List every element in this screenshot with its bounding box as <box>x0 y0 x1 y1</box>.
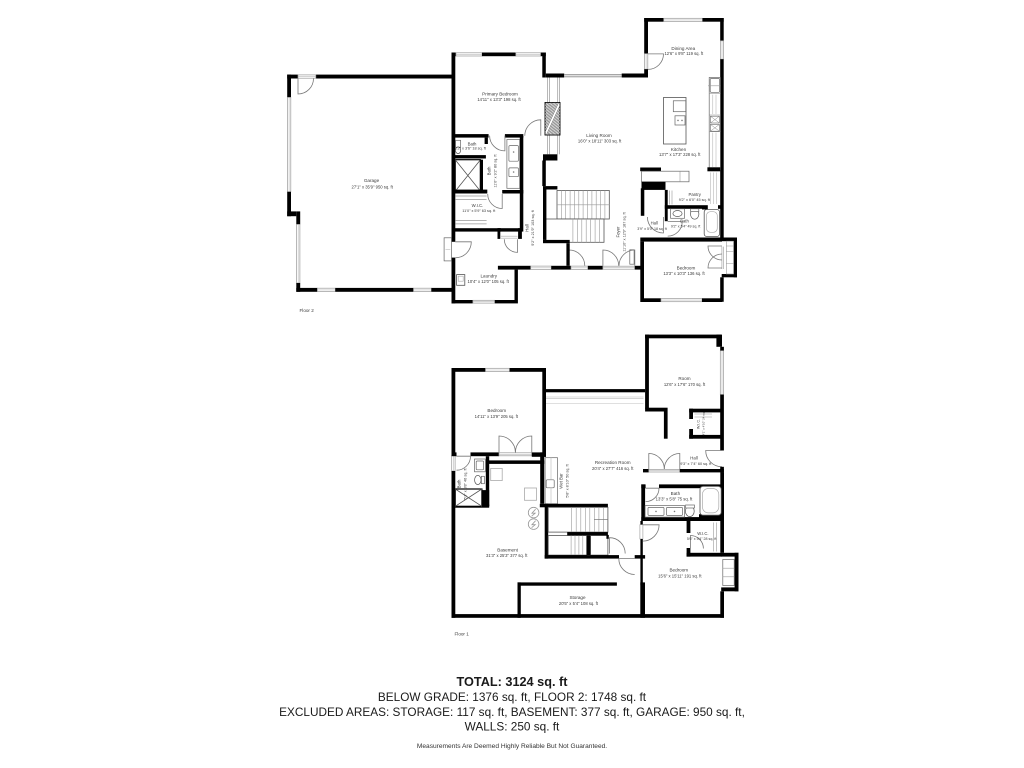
svg-text:12'6" x 17'6" 170 sq. ft: 12'6" x 17'6" 170 sq. ft <box>664 382 706 387</box>
svg-text:Measurements Are Deemed Highly: Measurements Are Deemed Highly Reliable … <box>417 743 607 750</box>
svg-text:W.I.C.: W.I.C. <box>472 203 484 208</box>
svg-text:Garage: Garage <box>364 178 380 183</box>
svg-text:WALLS: 250 sq. ft: WALLS: 250 sq. ft <box>465 720 560 734</box>
svg-text:11'0" x 5'9" 63 sq. ft: 11'0" x 5'9" 63 sq. ft <box>462 209 496 213</box>
svg-text:Living Room: Living Room <box>586 133 612 138</box>
svg-text:Primary Bedroom: Primary Bedroom <box>482 92 518 97</box>
svg-text:20'5" x 5'4" 108 sq. ft: 20'5" x 5'4" 108 sq. ft <box>559 601 599 606</box>
svg-text:Basement: Basement <box>497 548 518 553</box>
svg-text:W.I.C.: W.I.C. <box>697 531 708 536</box>
svg-text:2'2" x 3'6" 18 sq. ft: 2'2" x 3'6" 18 sq. ft <box>455 147 487 151</box>
svg-text:TOTAL: 3124 sq. ft: TOTAL: 3124 sq. ft <box>457 675 569 689</box>
svg-text:11'10" x 12'9" 187 sq. ft: 11'10" x 12'9" 187 sq. ft <box>622 211 626 251</box>
svg-text:13'3" x 5'8" 75 sq. ft: 13'3" x 5'8" 75 sq. ft <box>656 497 694 502</box>
svg-text:Wet Bar: Wet Bar <box>559 473 564 489</box>
svg-text:W.I.C.: W.I.C. <box>697 419 701 429</box>
svg-text:27'1" x 35'9" 950 sq. ft: 27'1" x 35'9" 950 sq. ft <box>352 184 394 189</box>
svg-text:9'2" x 5'4" 49 sq. ft: 9'2" x 5'4" 49 sq. ft <box>671 225 701 229</box>
svg-text:13'3" x 10'3" 136 sq. ft: 13'3" x 10'3" 136 sq. ft <box>663 271 705 276</box>
svg-text:9'2" x 21'9" 103 sq. ft: 9'2" x 21'9" 103 sq. ft <box>531 209 535 245</box>
svg-text:Hall: Hall <box>525 224 530 231</box>
svg-text:Laundry: Laundry <box>480 273 497 278</box>
svg-text:BELOW GRADE: 1376 sq. ft, FLOO: BELOW GRADE: 1376 sq. ft, FLOOR 2: 1748 … <box>378 690 647 704</box>
svg-text:Storage: Storage <box>569 595 586 600</box>
svg-text:Bath: Bath <box>457 479 462 488</box>
svg-text:11'0" x 9'2" 80 sq. ft: 11'0" x 9'2" 80 sq. ft <box>494 154 498 188</box>
svg-text:Foyer: Foyer <box>616 226 621 238</box>
svg-text:Bath: Bath <box>487 166 492 175</box>
svg-text:EXCLUDED AREAS: STORAGE: 117 s: EXCLUDED AREAS: STORAGE: 117 sq. ft, BAS… <box>279 705 745 719</box>
svg-text:4'1" x 4'10" 24 sq: 4'1" x 4'10" 24 sq <box>701 412 705 435</box>
svg-text:9'2" x 6'0" 45 sq. ft: 9'2" x 6'0" 45 sq. ft <box>679 198 711 202</box>
svg-text:3'9" x 5'0" 18 sq. ft: 3'9" x 5'0" 18 sq. ft <box>637 227 667 231</box>
svg-text:5'3" x 8'8" 46 sq. ft: 5'3" x 8'8" 46 sq. ft <box>463 467 467 499</box>
svg-text:Bedroom: Bedroom <box>677 266 696 271</box>
svg-text:Hall: Hall <box>651 221 658 226</box>
svg-text:Floor 1: Floor 1 <box>455 632 470 637</box>
svg-text:Floor 2: Floor 2 <box>300 308 315 313</box>
svg-text:Bedroom: Bedroom <box>669 568 688 573</box>
svg-text:Room: Room <box>678 376 690 381</box>
svg-text:Bath: Bath <box>671 491 681 496</box>
svg-text:15'6" x 15'11" 191 sq. ft: 15'6" x 15'11" 191 sq. ft <box>658 573 702 578</box>
svg-text:31'3" x 25'3" 377 sq. ft: 31'3" x 25'3" 377 sq. ft <box>486 553 528 558</box>
svg-text:Bath: Bath <box>680 218 689 223</box>
svg-text:14'11" x 13'3" 198 sq. ft: 14'11" x 13'3" 198 sq. ft <box>477 97 521 102</box>
svg-text:9'3" x 7'4" 60 sq. ft: 9'3" x 7'4" 60 sq. ft <box>680 462 712 466</box>
svg-text:5'6" x 5'4" 28 sq. ft: 5'6" x 5'4" 28 sq. ft <box>687 537 717 541</box>
svg-text:20'4" x 27'7" 416 sq. ft: 20'4" x 27'7" 416 sq. ft <box>592 466 634 471</box>
svg-text:5'8" x 8'10" 50 sq. ft: 5'8" x 8'10" 50 sq. ft <box>565 463 569 497</box>
svg-text:Pantry: Pantry <box>688 192 701 197</box>
svg-text:16'0" x 18'11" 303 sq. ft: 16'0" x 18'11" 303 sq. ft <box>578 139 622 144</box>
svg-text:12'6" x 9'8" 119 sq. ft: 12'6" x 9'8" 119 sq. ft <box>664 51 704 56</box>
svg-text:10'4" x 12'0" 105 sq. ft: 10'4" x 12'0" 105 sq. ft <box>468 279 510 284</box>
svg-text:Bedroom: Bedroom <box>487 408 506 413</box>
svg-text:Bath: Bath <box>468 141 477 146</box>
svg-text:Hall: Hall <box>690 456 697 461</box>
svg-text:Recreation Room: Recreation Room <box>595 460 631 465</box>
svg-text:13'7" x 17'3" 228 sq. ft: 13'7" x 17'3" 228 sq. ft <box>659 152 701 157</box>
svg-text:14'11" x 13'9" 205 sq. ft: 14'11" x 13'9" 205 sq. ft <box>475 414 519 419</box>
